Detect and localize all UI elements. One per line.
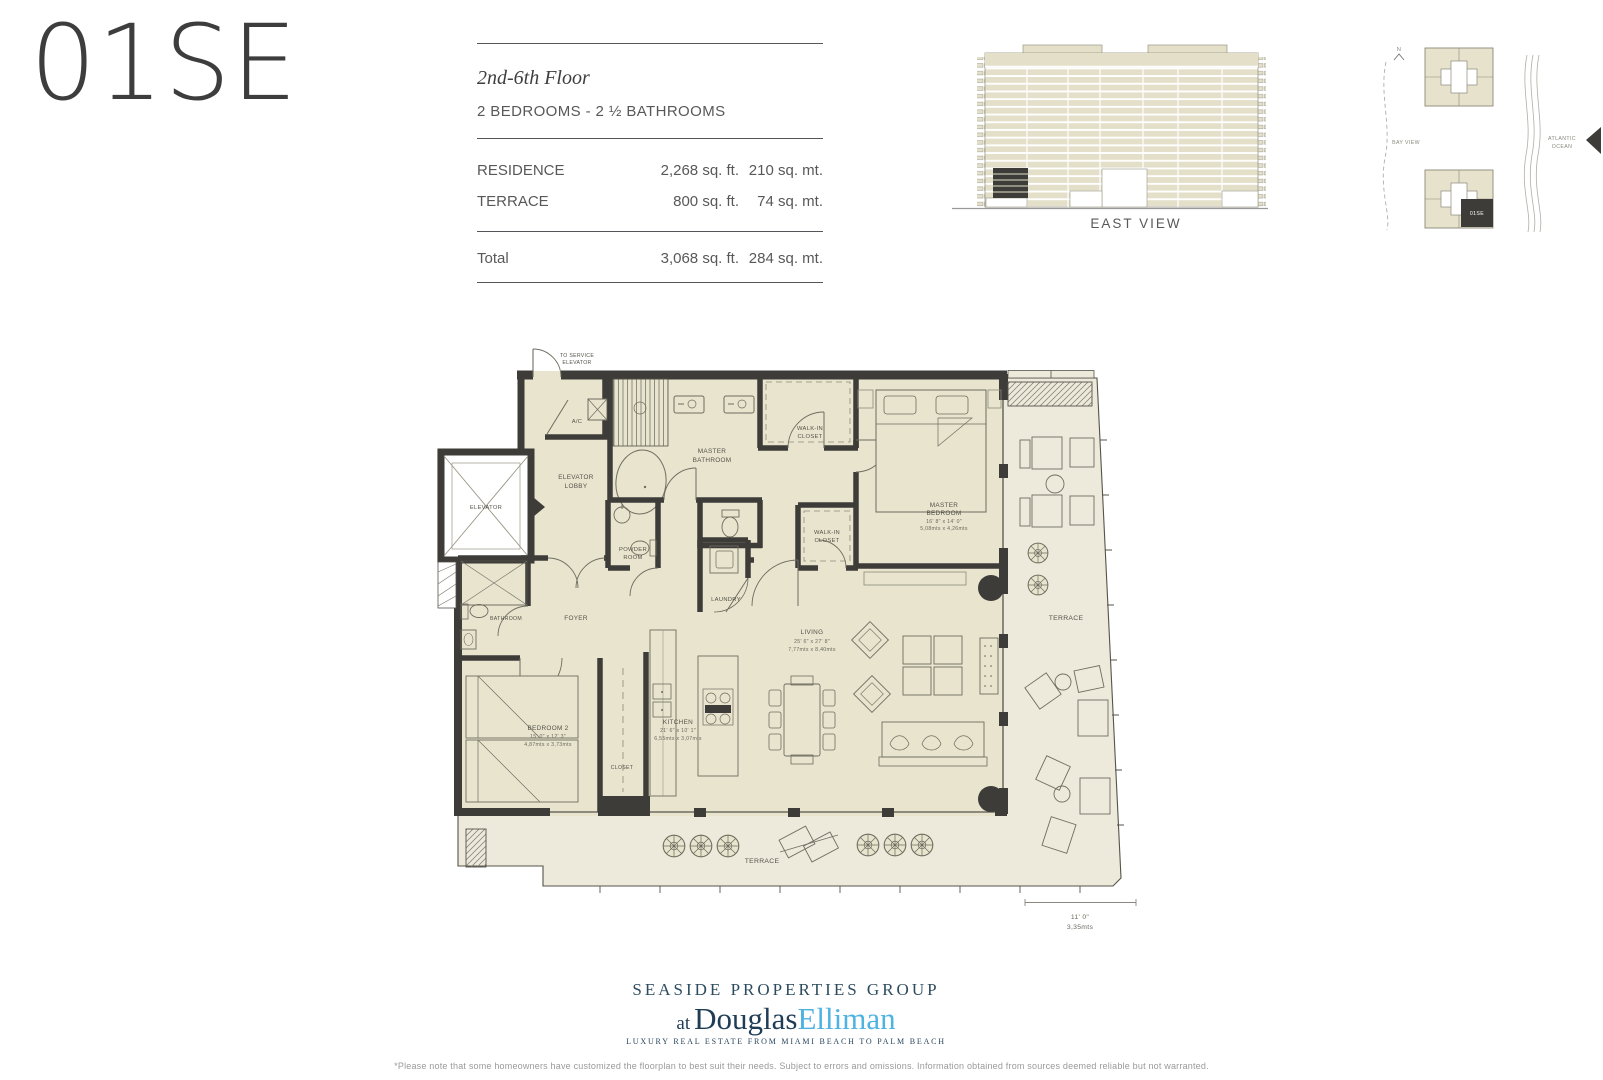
- terrace-dimension: 11' 0" 3,35mts: [1025, 899, 1136, 931]
- wic2-label-line2: CLOSET: [815, 538, 840, 544]
- master-bath-label-line1: MASTER: [698, 448, 727, 455]
- bedroom2-dim-ft: 15' 0" x 12' 3": [530, 734, 566, 740]
- north-building-footprint: [1425, 48, 1493, 106]
- plant: [690, 835, 712, 857]
- logo-at: at: [676, 1013, 690, 1034]
- plant: [884, 834, 906, 856]
- living-label: LIVING: [801, 629, 824, 636]
- logo-douglas: Douglas: [694, 1001, 797, 1036]
- master-bath-label-line2: BATHROOM: [693, 457, 732, 464]
- master-bedroom-label-line2: BEDROOM: [926, 510, 961, 517]
- dimension-ft: 11' 0": [1071, 914, 1090, 921]
- bed: [466, 740, 578, 802]
- bathroom2-label: BATHROOM: [490, 616, 522, 622]
- floorplan-drawing: ELEVATOR TO SERVICE ELEVATOR A/C ELEVATO…: [437, 349, 1136, 931]
- living-dim-ft: 25' 6" x 27' 8": [794, 639, 830, 645]
- plan-graphics: EAST VIEW N BAY VIEW 01SE: [0, 0, 1603, 1080]
- planter: [466, 829, 486, 867]
- logo-tagline: LUXURY REAL ESTATE FROM MIAMI BEACH TO P…: [586, 1037, 986, 1046]
- kitchen-dim-mt: 6,55mts x 3,07mts: [654, 736, 702, 742]
- bay-shoreline: [1383, 62, 1388, 230]
- unit-location-marker: [993, 168, 1028, 198]
- logo-group-name: SEASIDE PROPERTIES GROUP: [586, 980, 986, 1000]
- dimension-mt: 3,35mts: [1067, 924, 1094, 931]
- ocean-label-line1: ATLANTIC: [1548, 136, 1576, 142]
- bedroom2-label: BEDROOM 2: [527, 725, 568, 732]
- north-arrow-icon: [1394, 54, 1404, 60]
- brokerage-logo: SEASIDE PROPERTIES GROUP at DouglasEllim…: [586, 980, 986, 1046]
- logo-brand-name: at DouglasElliman: [586, 1001, 986, 1037]
- powder-room-label-line1: POWDER: [619, 547, 647, 553]
- unit-site-marker-label: 01SE: [1470, 211, 1484, 217]
- logo-elliman: Elliman: [797, 1001, 895, 1036]
- kitchen-label: KITCHEN: [663, 719, 693, 726]
- master-bedroom-dim-ft: 16' 8" x 14' 0": [926, 519, 962, 525]
- planter: [1008, 382, 1092, 406]
- column: [978, 575, 1004, 601]
- east-view-caption: EAST VIEW: [1090, 216, 1181, 231]
- service-elevator-label-line1: TO SERVICE: [560, 353, 594, 359]
- elevator-shaft: ELEVATOR: [441, 452, 545, 560]
- elevator-lobby-label-line1: ELEVATOR: [558, 474, 594, 481]
- ocean-wave-line: [1524, 55, 1529, 232]
- bed: [876, 390, 986, 512]
- plant: [1028, 543, 1048, 563]
- wic1-label-line2: CLOSET: [798, 434, 823, 440]
- disclaimer-text: *Please note that some homeowners have c…: [0, 1061, 1603, 1071]
- floorplan-sheet: 01SE 2nd-6th Floor 2 BEDROOMS - 2 ½ BATH…: [0, 0, 1603, 1080]
- ac-label: A/C: [572, 419, 583, 425]
- south-building-footprint: 01SE: [1425, 170, 1493, 228]
- foyer-label: FOYER: [564, 615, 588, 622]
- ocean-wave-line: [1530, 55, 1535, 232]
- plant: [911, 834, 933, 856]
- bay-view-label: BAY VIEW: [1392, 140, 1420, 146]
- terrace-bottom-label: TERRACE: [745, 858, 780, 865]
- plant: [857, 834, 879, 856]
- plant: [663, 835, 685, 857]
- closet-label: CLOSET: [611, 765, 634, 771]
- wic2-label-line1: WALK-IN: [814, 530, 840, 536]
- elevator-lobby-label-line2: LOBBY: [565, 483, 588, 490]
- ocean-wave-line: [1536, 55, 1541, 232]
- master-bedroom-dim-mt: 5,08mts x 4,26mts: [920, 526, 968, 532]
- kitchen-dim-ft: 21' 6" x 10' 1": [660, 728, 696, 734]
- service-elevator-label-line2: ELEVATOR: [562, 360, 591, 366]
- column: [978, 786, 1004, 812]
- north-label: N: [1397, 47, 1402, 53]
- elevator-label: ELEVATOR: [470, 505, 502, 511]
- powder-room-label-line2: ROOM: [623, 555, 642, 561]
- living-dim-mt: 7,77mts x 8,40mts: [788, 647, 836, 653]
- plant: [717, 835, 739, 857]
- terrace-right-label: TERRACE: [1049, 615, 1084, 622]
- wic1-label-line1: WALK-IN: [797, 426, 823, 432]
- plant: [1028, 575, 1048, 595]
- ocean-label-line2: OCEAN: [1552, 144, 1572, 150]
- bedroom2-dim-mt: 4,87mts x 3,73mts: [524, 742, 572, 748]
- island: [698, 656, 738, 776]
- master-bedroom-label-line1: MASTER: [930, 502, 959, 509]
- laundry-label: LAUNDRY: [711, 597, 741, 603]
- east-direction-arrow-icon: [1586, 127, 1601, 154]
- east-view-elevation: EAST VIEW: [952, 45, 1268, 231]
- site-plan: N BAY VIEW 01SE: [1383, 47, 1601, 232]
